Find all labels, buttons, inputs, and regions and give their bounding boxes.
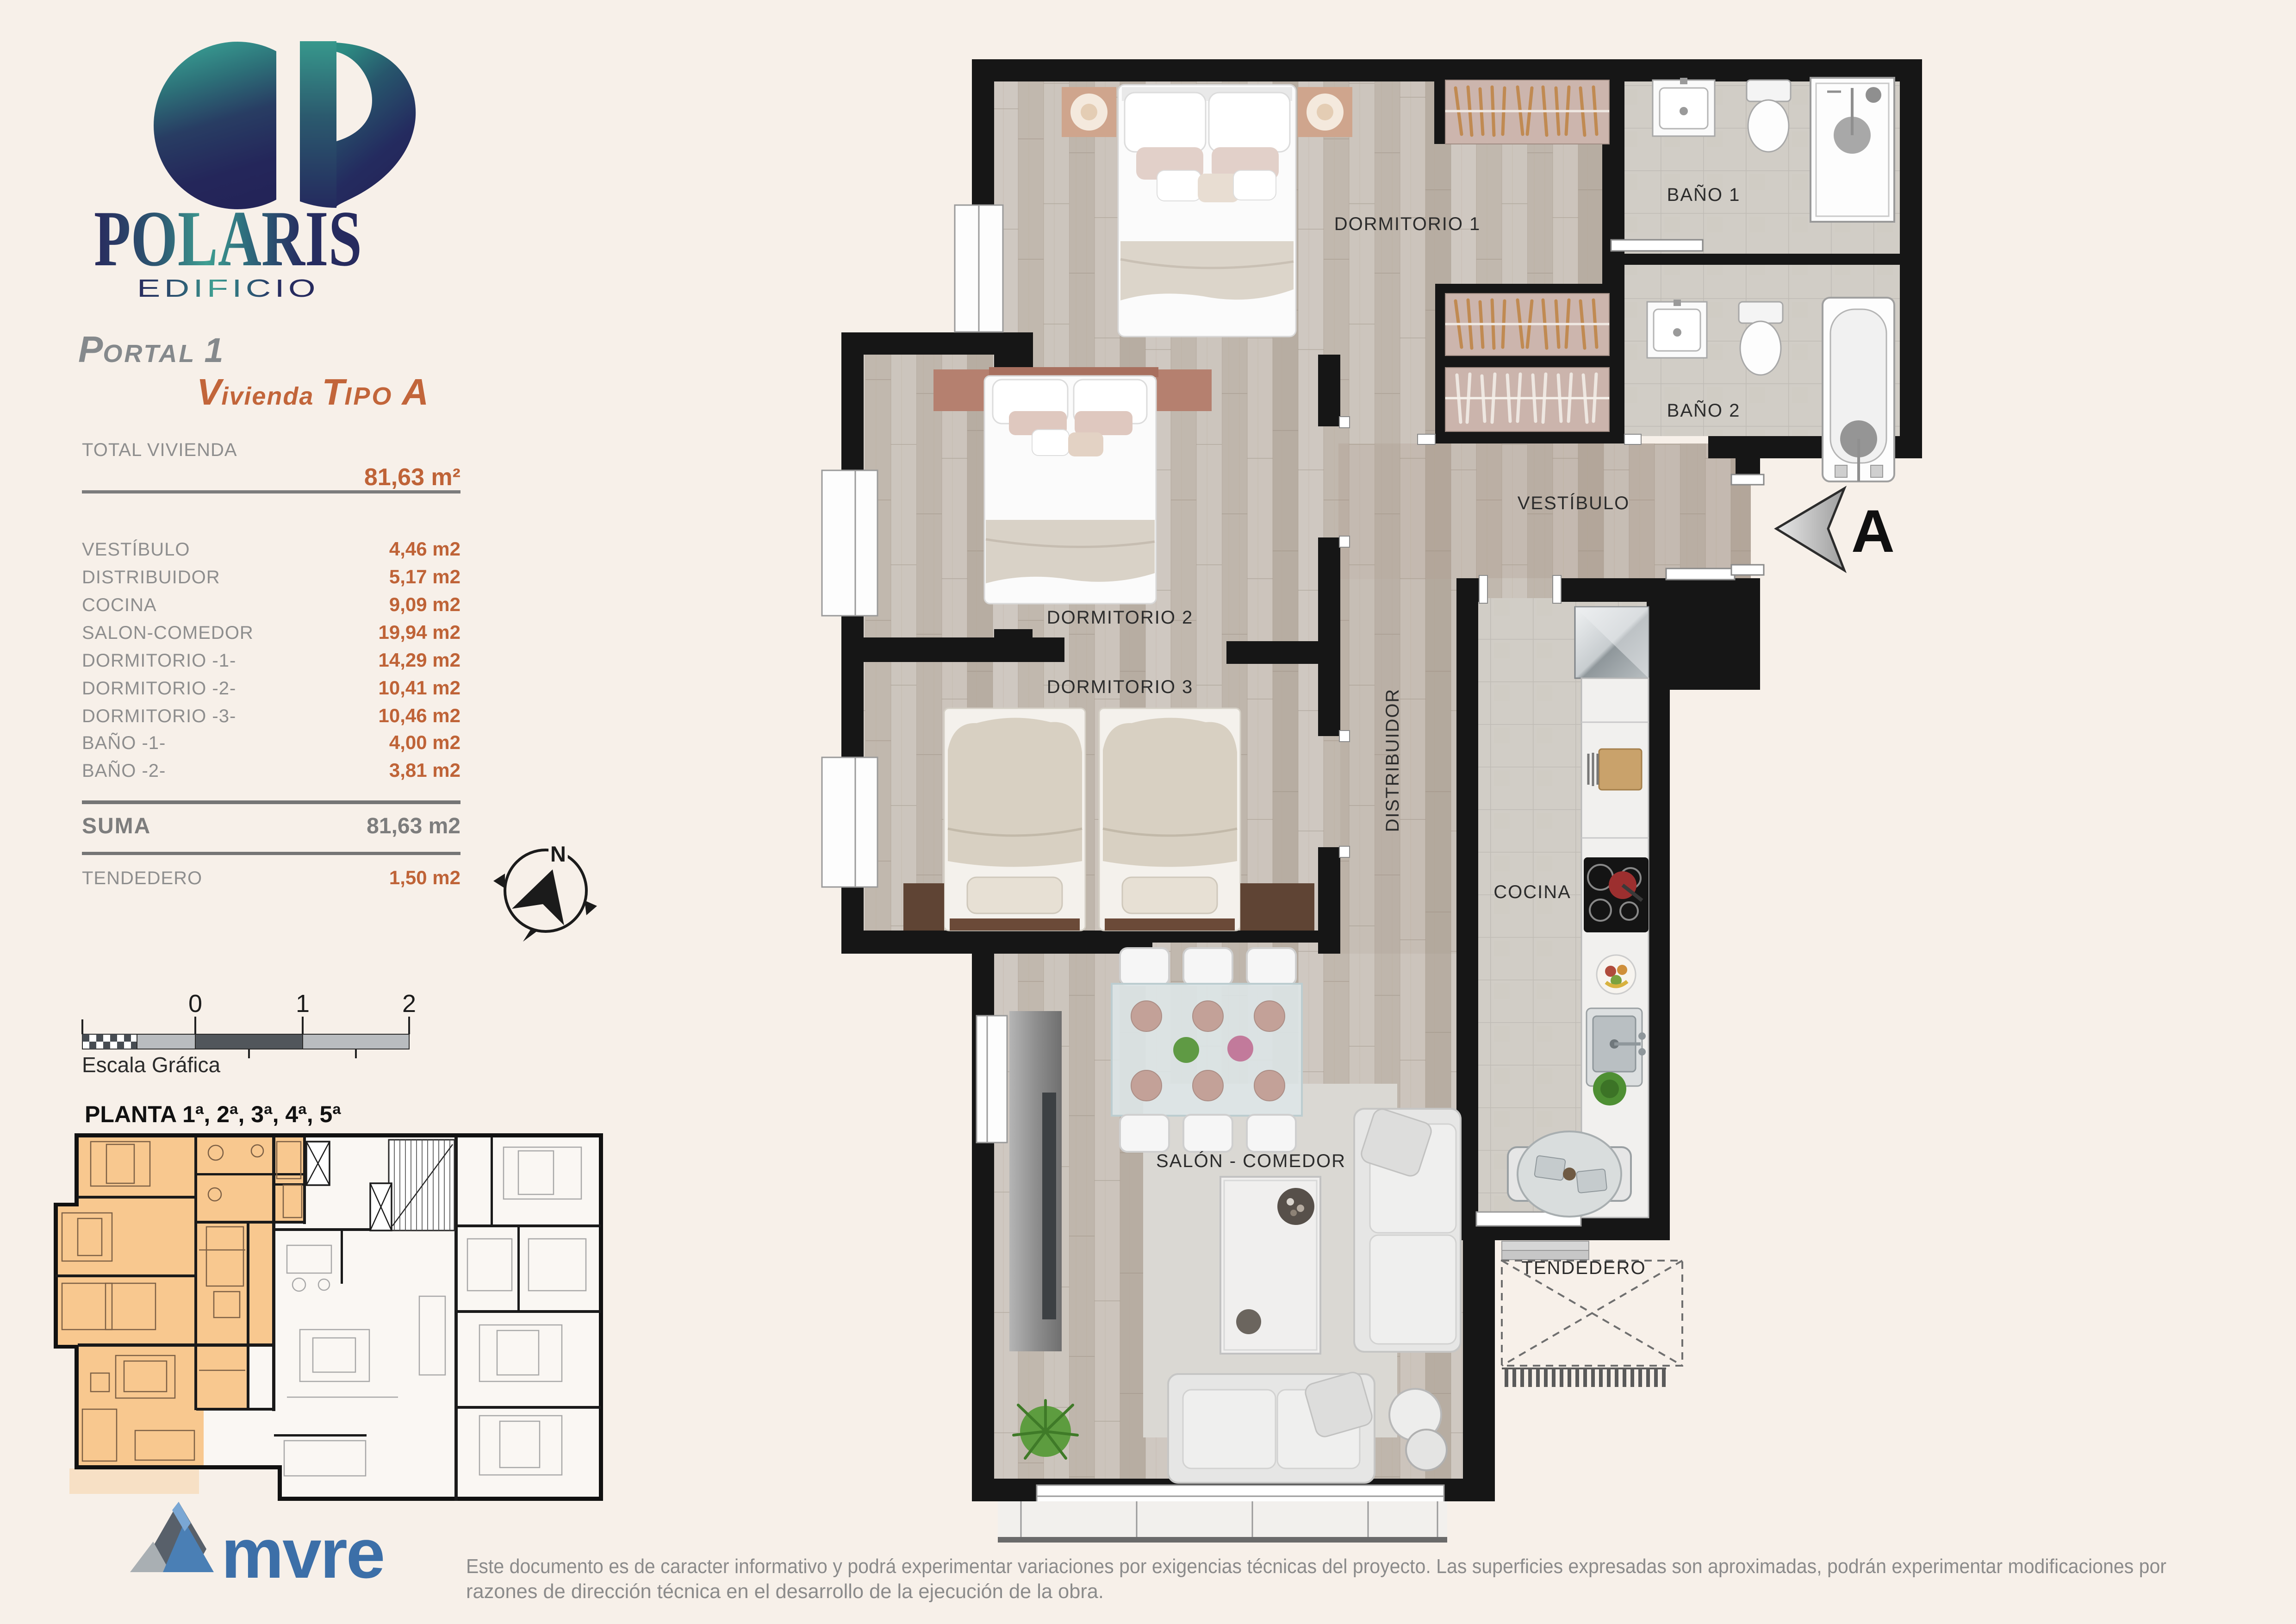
svg-text:TENDEDERO: TENDEDERO [1521, 1258, 1646, 1278]
svg-text:1: 1 [296, 990, 310, 1018]
svg-text:Este documento es de caracter: Este documento es de caracter informativ… [466, 1555, 2166, 1578]
svg-text:razones de dirección técnica e: razones de dirección técnica en el desar… [466, 1580, 1104, 1603]
svg-text:10,41 m2: 10,41 m2 [379, 677, 460, 699]
svg-text:PLANTA 1ª, 2ª, 3ª, 4ª, 5ª: PLANTA 1ª, 2ª, 3ª, 4ª, 5ª [85, 1101, 341, 1127]
svg-text:BAÑO 1: BAÑO 1 [1667, 184, 1741, 205]
svg-text:1,50 m2: 1,50 m2 [389, 867, 460, 888]
svg-text:EDIFICIO: EDIFICIO [137, 275, 319, 302]
svg-text:BAÑO 2: BAÑO 2 [1667, 400, 1741, 421]
svg-text:DORMITORIO 2: DORMITORIO 2 [1047, 607, 1194, 628]
svg-text:DORMITORIO -1-: DORMITORIO -1- [82, 650, 236, 671]
svg-text:5,17 m2: 5,17 m2 [389, 566, 460, 587]
svg-text:COCINA: COCINA [82, 595, 157, 615]
svg-text:mvre: mvre [221, 1514, 384, 1593]
svg-text:Escala Gráfica: Escala Gráfica [82, 1053, 221, 1077]
svg-text:DISTRIBUIDOR: DISTRIBUIDOR [1382, 688, 1403, 832]
svg-text:0: 0 [188, 990, 202, 1018]
svg-text:DORMITORIO 1: DORMITORIO 1 [1334, 214, 1481, 234]
svg-text:BAÑO -1-: BAÑO -1- [82, 732, 166, 753]
svg-text:81,63 m²: 81,63 m² [364, 464, 460, 491]
svg-text:SALON-COMEDOR: SALON-COMEDOR [82, 623, 254, 643]
svg-text:9,09 m2: 9,09 m2 [389, 593, 460, 615]
svg-text:VESTÍBULO: VESTÍBULO [82, 539, 190, 560]
svg-text:DISTRIBUIDOR: DISTRIBUIDOR [82, 567, 220, 587]
svg-text:19,94 m2: 19,94 m2 [379, 621, 460, 643]
svg-text:DORMITORIO -2-: DORMITORIO -2- [82, 678, 236, 699]
svg-text:SALÓN - COMEDOR: SALÓN - COMEDOR [1156, 1150, 1346, 1171]
svg-text:81,63 m2: 81,63 m2 [367, 814, 460, 838]
svg-text:4,00 m2: 4,00 m2 [389, 731, 460, 753]
svg-text:14,29 m2: 14,29 m2 [379, 649, 460, 671]
svg-text:10,46 m2: 10,46 m2 [379, 705, 460, 726]
svg-text:BAÑO -2-: BAÑO -2- [82, 760, 166, 781]
svg-text:POLARIS: POLARIS [94, 195, 362, 283]
svg-text:DORMITORIO -3-: DORMITORIO -3- [82, 706, 236, 726]
svg-text:TOTAL VIVIENDA: TOTAL VIVIENDA [82, 440, 237, 460]
svg-text:SUMA: SUMA [82, 814, 151, 838]
svg-text:VESTÍBULO: VESTÍBULO [1518, 493, 1630, 513]
svg-text:N: N [550, 842, 566, 866]
svg-text:TENDEDERO: TENDEDERO [82, 868, 202, 888]
svg-text:2: 2 [402, 990, 416, 1018]
svg-text:DORMITORIO 3: DORMITORIO 3 [1047, 677, 1194, 697]
svg-text:COCINA: COCINA [1493, 882, 1571, 902]
svg-text:4,46 m2: 4,46 m2 [389, 538, 460, 560]
svg-text:A: A [1851, 497, 1895, 565]
svg-text:3,81 m2: 3,81 m2 [389, 759, 460, 781]
